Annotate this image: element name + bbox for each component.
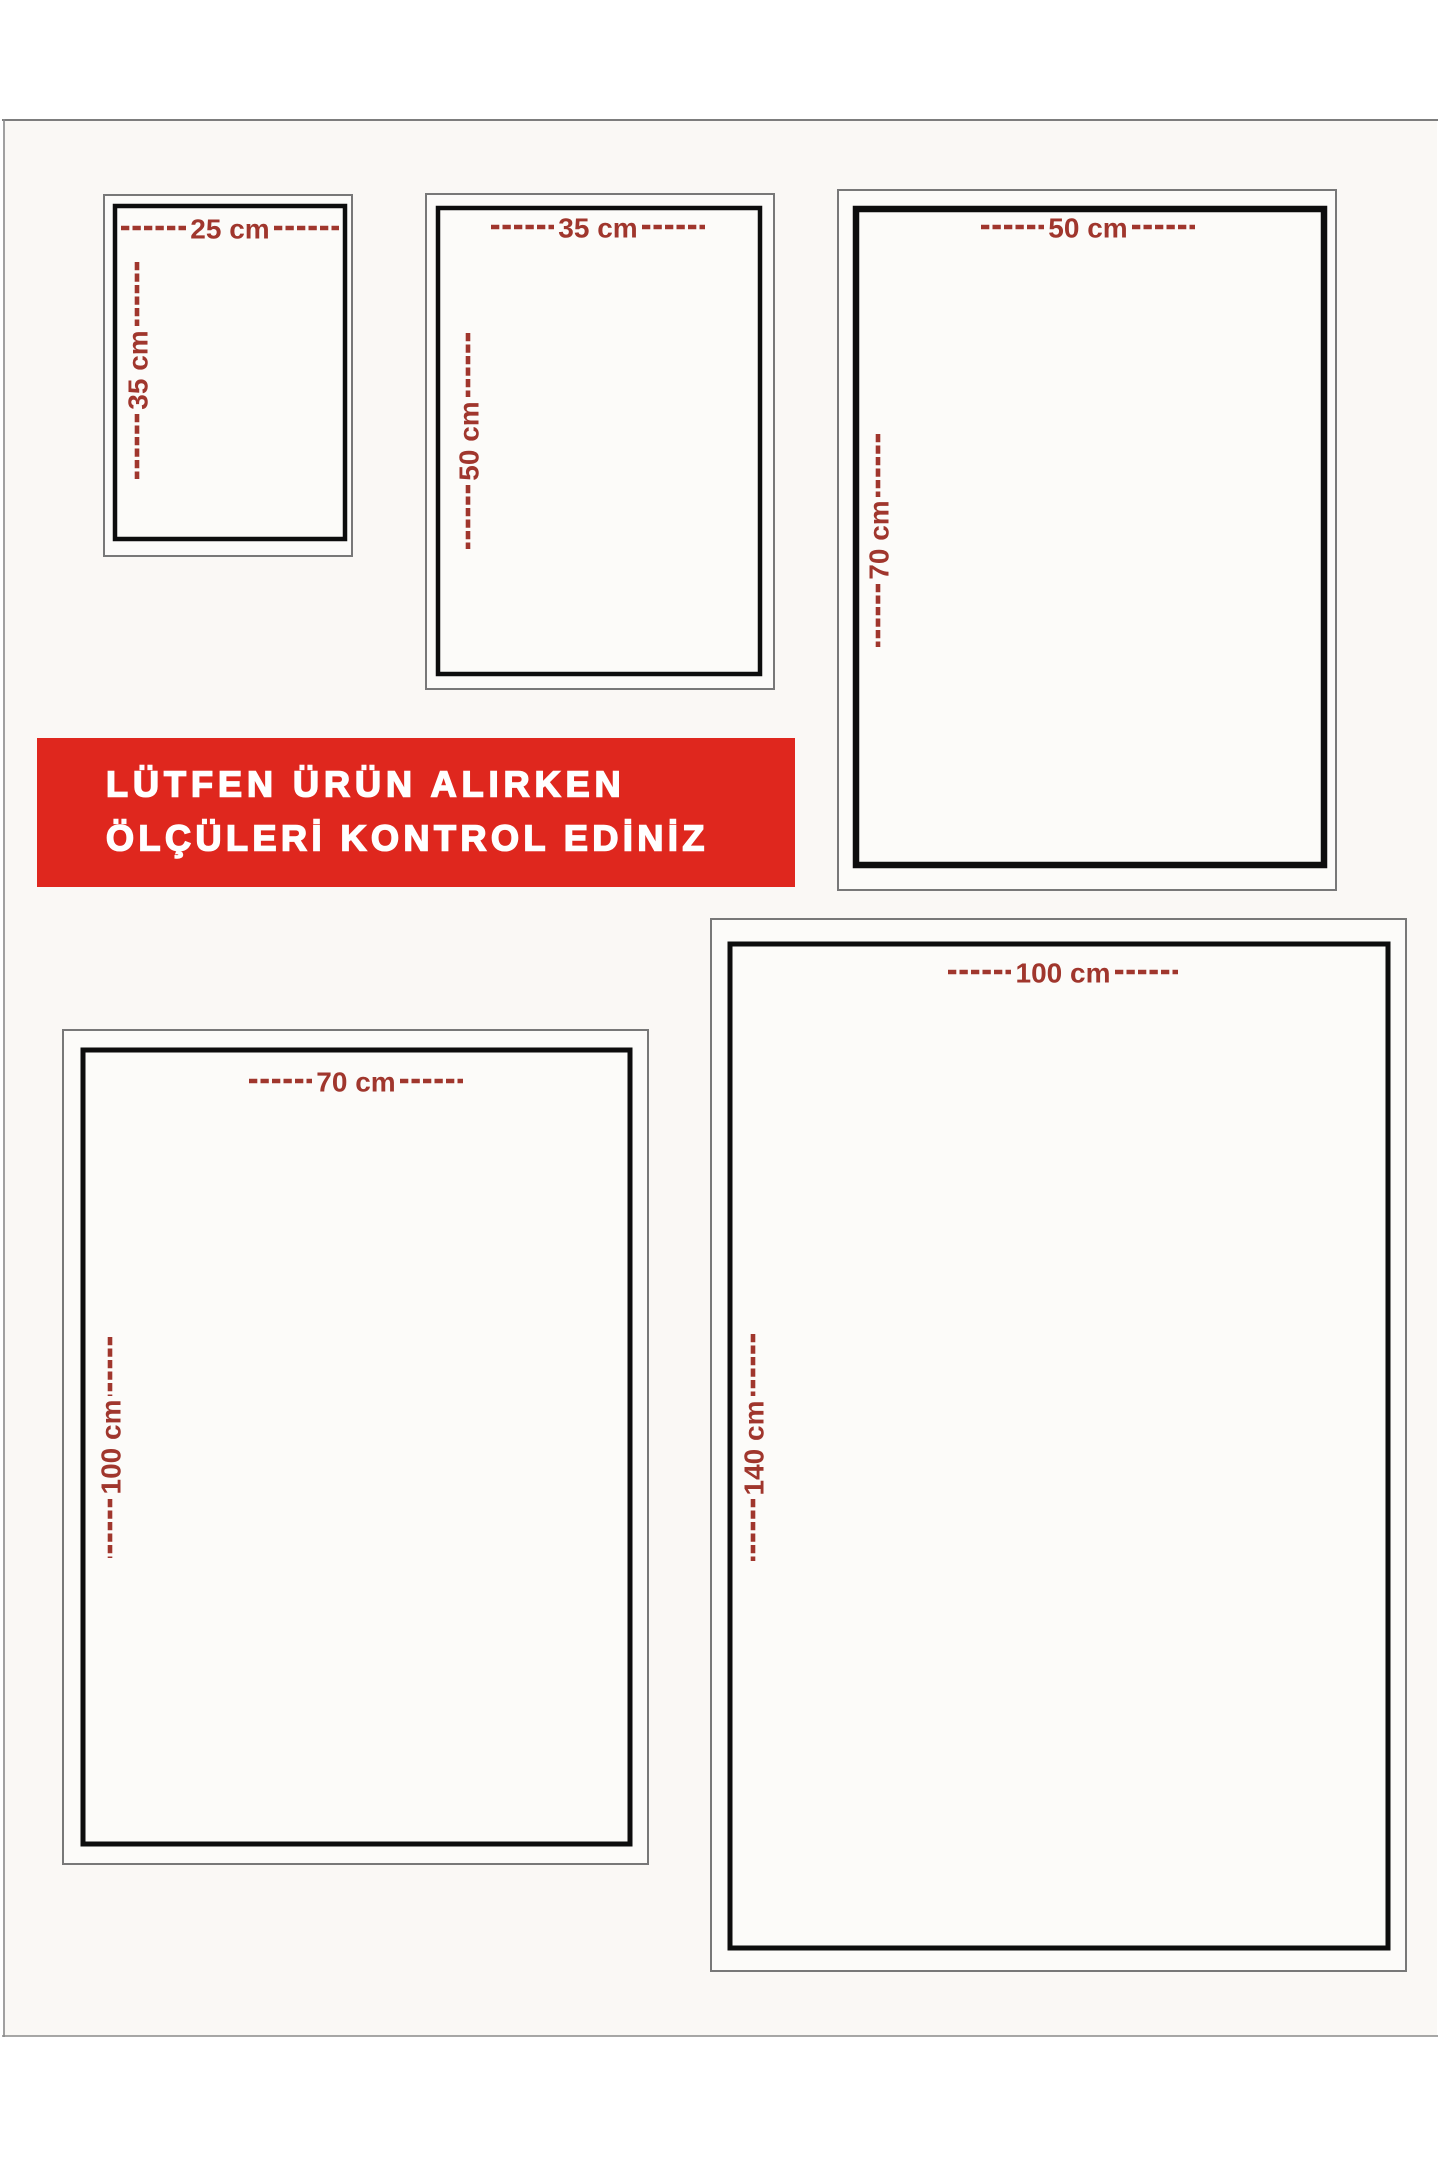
svg-text:70 cm: 70 cm: [864, 500, 895, 579]
svg-text:35 cm: 35 cm: [558, 213, 637, 244]
svg-text:50 cm: 50 cm: [1048, 213, 1127, 244]
svg-text:LÜTFEN ÜRÜN ALIRKEN: LÜTFEN ÜRÜN ALIRKEN: [106, 764, 626, 805]
svg-text:35 cm: 35 cm: [123, 330, 154, 409]
svg-text:50 cm: 50 cm: [454, 401, 485, 480]
svg-text:140 cm: 140 cm: [739, 1401, 770, 1496]
svg-text:100 cm: 100 cm: [1016, 958, 1111, 989]
svg-text:25 cm: 25 cm: [190, 214, 269, 245]
svg-text:70 cm: 70 cm: [316, 1067, 395, 1098]
svg-text:ÖLÇÜLERİ KONTROL EDİNİZ: ÖLÇÜLERİ KONTROL EDİNİZ: [106, 818, 709, 859]
svg-text:100 cm: 100 cm: [96, 1400, 127, 1495]
